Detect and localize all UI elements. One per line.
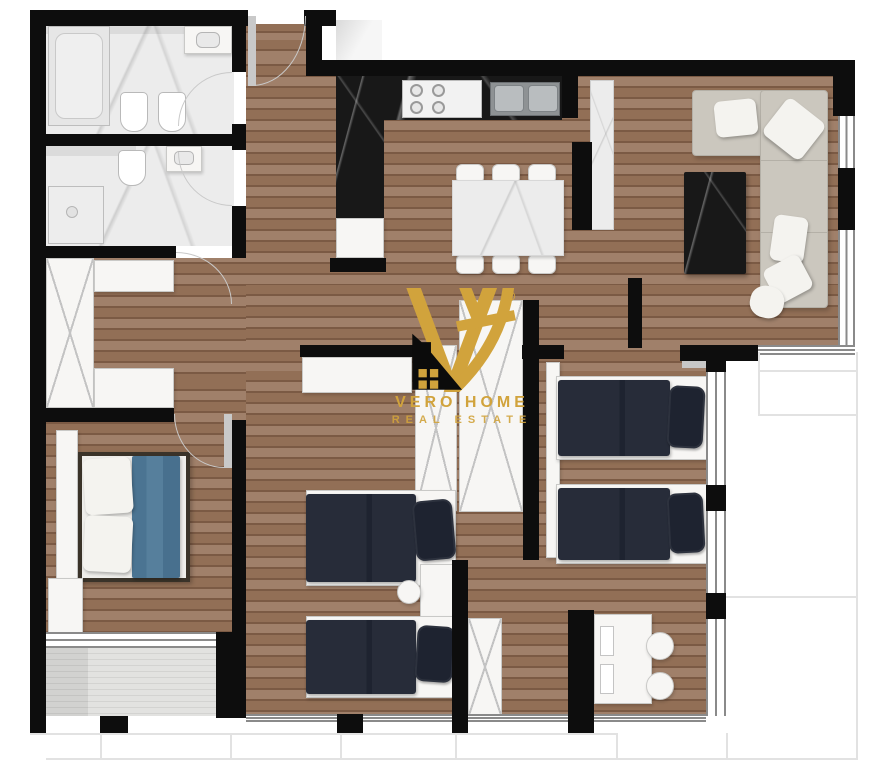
balcony-deck-shadow bbox=[46, 648, 88, 716]
desk-chair bbox=[646, 632, 674, 660]
kitchen-counter-left bbox=[336, 76, 384, 218]
kitchen-cabinet bbox=[336, 218, 384, 258]
exterior-wall-top-left bbox=[30, 10, 248, 26]
master-door-leaf bbox=[224, 414, 232, 468]
dining-table bbox=[452, 180, 564, 256]
stove-burner bbox=[432, 101, 445, 114]
stool bbox=[397, 580, 421, 604]
master-headboard bbox=[56, 430, 78, 598]
right-bedroom-window bbox=[706, 372, 726, 716]
terrace-outline bbox=[455, 733, 457, 760]
corner-window bbox=[758, 345, 855, 355]
bathroom-right-wall bbox=[232, 206, 246, 258]
bathroom-right-wall bbox=[232, 10, 246, 72]
closet-bottom bbox=[468, 618, 502, 716]
exterior-wall-top-main bbox=[322, 60, 855, 76]
dining-chair bbox=[456, 254, 484, 274]
master-pillow bbox=[83, 515, 134, 573]
single-bed-duvet bbox=[306, 494, 416, 582]
corner-block-top-right bbox=[833, 60, 855, 116]
corridor-shelf-top bbox=[94, 260, 174, 292]
bottom-window-block bbox=[337, 714, 363, 733]
exterior-wall-right bbox=[838, 168, 855, 230]
middle-bedroom-top-wall bbox=[300, 345, 415, 357]
terrace-outline bbox=[30, 733, 616, 735]
sofa-cushion bbox=[713, 98, 759, 138]
balcony-pillar bbox=[216, 632, 246, 718]
watermark-logo bbox=[404, 288, 516, 392]
terrace-outline bbox=[616, 733, 618, 760]
hall-living-divider bbox=[628, 278, 642, 348]
single-bed-duvet bbox=[558, 380, 670, 456]
balcony-bottom-block bbox=[100, 716, 128, 734]
master-right-wall bbox=[232, 420, 246, 632]
closet-area-window bbox=[468, 714, 568, 722]
vh-monogram-icon bbox=[404, 288, 516, 392]
living-window bbox=[838, 230, 855, 345]
bed-pillow bbox=[666, 492, 705, 554]
master-duvet bbox=[132, 456, 180, 578]
bathtub-basin bbox=[55, 33, 103, 119]
desk-drawer bbox=[600, 626, 614, 656]
entry-step-wall bbox=[306, 10, 322, 76]
exterior-niche bbox=[336, 20, 382, 60]
master-top-wall bbox=[46, 408, 174, 422]
desk-chair bbox=[646, 672, 674, 700]
bathroom-right-wall bbox=[232, 124, 246, 150]
desk-drawer bbox=[600, 664, 614, 694]
wardrobe-corridor bbox=[46, 258, 94, 408]
tagline-text: REAL ESTATE bbox=[360, 414, 564, 426]
terrace-outline bbox=[856, 352, 858, 760]
bedroom-partition-wall bbox=[452, 560, 468, 733]
closet-right-wall bbox=[523, 300, 539, 560]
bathroom-divider-wall bbox=[46, 134, 234, 146]
terrace-outline bbox=[46, 758, 858, 760]
single-bed-duvet bbox=[558, 488, 670, 560]
bed-pillow bbox=[414, 625, 456, 684]
sink-basin bbox=[196, 32, 220, 48]
living-window bbox=[838, 116, 855, 168]
right-bedroom-wall-top bbox=[706, 345, 726, 372]
coffee-table bbox=[684, 172, 746, 274]
corridor-shelf-bottom bbox=[94, 368, 174, 408]
stove-burner bbox=[410, 101, 423, 114]
kitchen-divider-panel bbox=[590, 80, 614, 230]
bed-pillow bbox=[666, 385, 705, 449]
bed-pillow bbox=[411, 498, 456, 561]
single-bed-duvet bbox=[306, 620, 416, 694]
terrace-outline bbox=[100, 733, 102, 760]
brand-text: VERO HOME bbox=[360, 394, 564, 412]
window-pillar bbox=[706, 485, 726, 511]
terrace-outline bbox=[726, 733, 728, 760]
kitchen-corner-stub bbox=[330, 258, 386, 272]
master-dresser bbox=[48, 578, 83, 638]
terrace-outline bbox=[758, 414, 856, 416]
toilet bbox=[120, 92, 148, 132]
terrace-outline bbox=[230, 733, 232, 760]
sink-bowl bbox=[528, 85, 558, 112]
nightstand bbox=[420, 564, 454, 620]
desk-area-wall bbox=[568, 610, 594, 733]
shower-drain bbox=[66, 206, 78, 218]
terrace-outline bbox=[726, 596, 856, 598]
right-bedroom-bottom-window bbox=[594, 714, 706, 722]
stove-burner bbox=[432, 84, 445, 97]
sink-bowl bbox=[494, 85, 524, 112]
dining-chair bbox=[528, 254, 556, 274]
stove-burner bbox=[410, 84, 423, 97]
kitchen-divider-stub bbox=[562, 76, 578, 118]
middle-bedroom-desk bbox=[302, 357, 412, 393]
toilet-2 bbox=[118, 150, 146, 186]
kitchen-divider-wall bbox=[572, 142, 592, 230]
balcony-sliding-door bbox=[46, 632, 216, 648]
terrace-outline bbox=[758, 352, 760, 416]
sofa-seam bbox=[761, 160, 827, 161]
master-pillow bbox=[82, 456, 134, 515]
dining-chair bbox=[492, 254, 520, 274]
registered-trademark: ® bbox=[505, 288, 515, 304]
floor-plan: ® VERO HOME REAL ESTATE bbox=[0, 0, 888, 768]
terrace-outline bbox=[758, 370, 856, 372]
bathroom-bottom-wall bbox=[46, 246, 176, 258]
exterior-wall-left bbox=[30, 10, 46, 733]
terrace-outline bbox=[340, 733, 342, 760]
window-pillar bbox=[706, 593, 726, 619]
